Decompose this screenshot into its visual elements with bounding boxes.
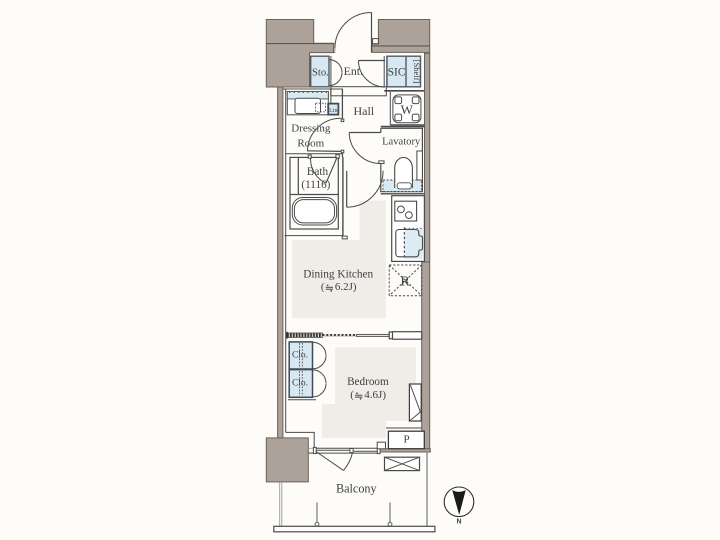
svg-text:(: ( <box>321 281 325 293</box>
svg-text:Room: Room <box>297 137 324 149</box>
svg-text:Dressing: Dressing <box>291 122 331 134</box>
svg-text:Balcony: Balcony <box>336 482 378 496</box>
svg-text:N: N <box>456 518 461 525</box>
svg-text:Bedroom: Bedroom <box>347 376 389 388</box>
svg-text:Hall: Hall <box>353 104 374 118</box>
svg-text:6.2J): 6.2J) <box>335 281 357 293</box>
svg-text:Clo.: Clo. <box>292 379 308 389</box>
svg-text:Dining Kitchen: Dining Kitchen <box>303 268 373 280</box>
svg-text:Bath: Bath <box>307 166 329 178</box>
svg-text:P: P <box>404 434 410 446</box>
svg-text:(: ( <box>350 389 354 401</box>
svg-text:Lavatory: Lavatory <box>382 137 421 148</box>
svg-text:Clo.: Clo. <box>292 351 308 361</box>
svg-text:[Shelf]: [Shelf] <box>412 60 422 84</box>
svg-text:W: W <box>401 102 414 117</box>
svg-text:4.6J): 4.6J) <box>364 389 386 401</box>
svg-text:Sto.: Sto. <box>312 67 329 78</box>
svg-text:(1116): (1116) <box>301 179 330 191</box>
svg-text:Lin: Lin <box>329 108 337 114</box>
svg-text:R: R <box>400 275 410 290</box>
svg-text:SIC: SIC <box>388 66 406 79</box>
